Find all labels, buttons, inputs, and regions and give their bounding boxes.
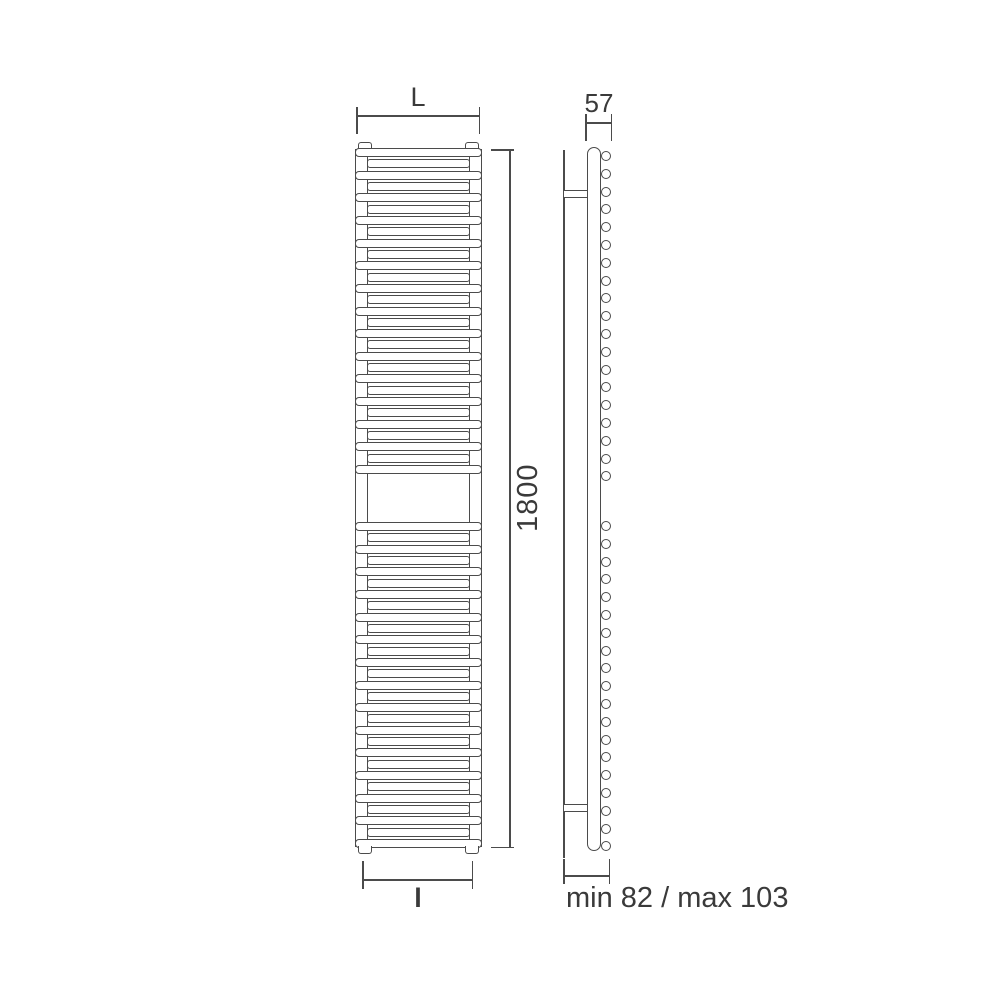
dimension-tick	[356, 107, 358, 134]
dimension-line	[563, 875, 610, 877]
radiator-tube-bar	[367, 828, 470, 837]
radiator-tube-bar	[355, 261, 482, 270]
tube-end-circle	[601, 454, 611, 464]
radiator-tube-bar	[367, 318, 470, 327]
collector-tube-right	[469, 149, 482, 847]
radiator-tube-bar	[355, 839, 482, 848]
dimension-label-overall-width: L	[356, 82, 480, 113]
radiator-tube-bar	[355, 613, 482, 622]
tube-end-circle	[601, 521, 611, 531]
tube-end-circle	[601, 610, 611, 620]
dimension-line	[585, 122, 612, 124]
radiator-tube-bar	[355, 748, 482, 757]
radiator-tube-bar	[367, 431, 470, 440]
dimension-line	[356, 115, 480, 117]
wall-bracket-top	[564, 190, 589, 198]
tube-end-circle	[601, 276, 611, 286]
radiator-tube-bar	[355, 771, 482, 780]
radiator-tube-bar	[367, 737, 470, 746]
tube-end-circle	[601, 699, 611, 709]
tube-end-circle	[601, 592, 611, 602]
dimension-tick	[609, 859, 611, 884]
tube-end-circle	[601, 418, 611, 428]
bottom-cap-right	[465, 846, 479, 854]
radiator-tube-bar	[367, 579, 470, 588]
radiator-tube-bar	[355, 635, 482, 644]
dimension-tick	[479, 107, 481, 134]
radiator-tube-bar	[355, 794, 482, 803]
radiator-tube-bar	[367, 273, 470, 282]
radiator-tube-bar	[367, 805, 470, 814]
radiator-tube-bar	[355, 465, 482, 474]
tube-end-circle	[601, 752, 611, 762]
diagram-canvas: L 1800 57 l min 82 / max 103	[0, 0, 1000, 1000]
radiator-tube-bar	[367, 556, 470, 565]
radiator-tube-bar	[367, 363, 470, 372]
wall-mount-line	[563, 150, 565, 858]
tube-end-circle	[601, 681, 611, 691]
tube-end-circle	[601, 539, 611, 549]
radiator-tube-bar	[355, 816, 482, 825]
radiator-tube-bar	[367, 760, 470, 769]
dimension-tick	[563, 859, 565, 884]
tube-end-circle	[601, 471, 611, 481]
tube-end-circle	[601, 436, 611, 446]
dimension-tick	[491, 149, 514, 151]
radiator-tube-bar	[367, 386, 470, 395]
tube-end-circle	[601, 151, 611, 161]
tube-end-circle	[601, 258, 611, 268]
radiator-tube-bar	[367, 782, 470, 791]
radiator-tube-bar	[355, 703, 482, 712]
radiator-tube-bar	[355, 329, 482, 338]
radiator-tube-bar	[367, 454, 470, 463]
radiator-tube-bar	[367, 205, 470, 214]
radiator-tube-bar	[355, 681, 482, 690]
radiator-tube-bar	[355, 239, 482, 248]
bottom-cap-left	[358, 846, 372, 854]
tube-end-circle	[601, 240, 611, 250]
radiator-tube-bar	[367, 692, 470, 701]
radiator-tube-bar	[367, 601, 470, 610]
radiator-tube-bar	[355, 522, 482, 531]
tube-end-circle	[601, 574, 611, 584]
dimension-tick	[611, 114, 613, 141]
radiator-tube-bar	[355, 216, 482, 225]
radiator-tube-bar	[355, 352, 482, 361]
dimension-label-wall-distance: min 82 / max 103	[566, 882, 788, 915]
tube-end-circle	[601, 311, 611, 321]
side-view-collector-tube	[587, 147, 601, 851]
radiator-tube-bar	[355, 658, 482, 667]
tube-end-circle	[601, 841, 611, 851]
dimension-line	[509, 150, 511, 848]
radiator-tube-bar	[355, 374, 482, 383]
radiator-tube-bar	[355, 442, 482, 451]
radiator-tube-bar	[355, 590, 482, 599]
radiator-tube-bar	[367, 669, 470, 678]
dimension-label-connection-width: l	[362, 883, 474, 914]
radiator-tube-bar	[355, 307, 482, 316]
tube-end-circle	[601, 365, 611, 375]
dimension-line	[362, 879, 473, 881]
radiator-tube-bar	[367, 647, 470, 656]
tube-end-circle	[601, 628, 611, 638]
radiator-front-view	[355, 142, 482, 854]
radiator-tube-bar	[367, 295, 470, 304]
radiator-tube-bar	[355, 420, 482, 429]
radiator-tube-bar	[367, 340, 470, 349]
radiator-tube-bar	[367, 159, 470, 168]
wall-bracket-bottom	[564, 804, 589, 812]
radiator-tube-bar	[355, 284, 482, 293]
radiator-tube-bar	[355, 397, 482, 406]
tube-end-circle	[601, 646, 611, 656]
radiator-tube-bar	[367, 408, 470, 417]
radiator-tube-bar	[355, 567, 482, 576]
radiator-tube-bar	[367, 250, 470, 259]
tube-end-circle	[601, 557, 611, 567]
tube-end-circle	[601, 400, 611, 410]
tube-end-circle	[601, 788, 611, 798]
radiator-body	[355, 148, 482, 848]
tube-end-circle	[601, 347, 611, 357]
radiator-tube-bar	[367, 714, 470, 723]
radiator-tube-bar	[367, 533, 470, 542]
tube-end-circle	[601, 735, 611, 745]
radiator-tube-bar	[355, 193, 482, 202]
tube-end-circle	[601, 806, 611, 816]
tube-end-circle	[601, 663, 611, 673]
tube-end-circle	[601, 329, 611, 339]
tube-end-circle	[601, 717, 611, 727]
radiator-tube-bar	[355, 148, 482, 157]
radiator-tube-bar	[367, 227, 470, 236]
tube-end-circle	[601, 770, 611, 780]
radiator-tube-bar	[355, 171, 482, 180]
tube-end-circle	[601, 222, 611, 232]
tube-end-circle	[601, 382, 611, 392]
tube-end-circle	[601, 169, 611, 179]
dimension-tick	[585, 114, 587, 141]
tube-end-circle	[601, 187, 611, 197]
radiator-tube-bar	[367, 624, 470, 633]
tube-end-circle	[601, 824, 611, 834]
dimension-tick	[491, 847, 514, 849]
dimension-label-overall-height: 1800	[512, 452, 554, 544]
radiator-tube-bar	[367, 182, 470, 191]
tube-end-circle	[601, 204, 611, 214]
tube-end-circle	[601, 293, 611, 303]
radiator-tube-bar	[355, 726, 482, 735]
radiator-tube-bar	[355, 545, 482, 554]
